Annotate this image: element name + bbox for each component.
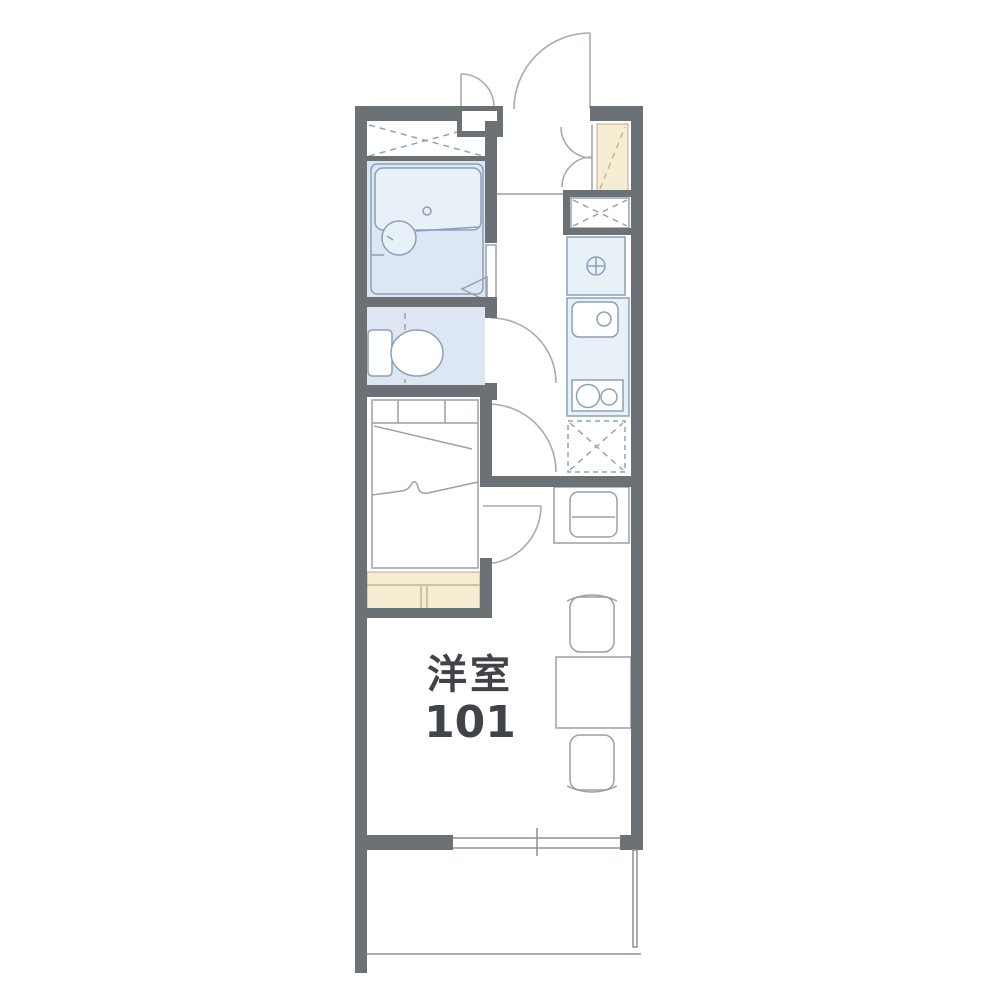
shoe-cabinet [597, 124, 628, 193]
bed [372, 400, 478, 568]
toilet-tank [368, 330, 392, 376]
storage-frame-top [563, 190, 631, 197]
bottom-wall-left [355, 835, 453, 850]
room-corner-wall [367, 608, 490, 618]
entrance-door-arc [514, 33, 590, 109]
top-wall-left [355, 106, 461, 121]
toilet-bottom-wall [355, 385, 492, 397]
washroom-door-arc [488, 404, 556, 472]
toilet-right-wall [485, 297, 497, 318]
bathtub [375, 168, 481, 230]
meter-box-door-arc [461, 74, 494, 107]
wash-basin [382, 221, 416, 255]
washer-tap-icon [587, 257, 605, 275]
storage-frame-bottom [563, 228, 631, 235]
storage-counter [367, 572, 480, 611]
bath-right-wall [485, 121, 497, 243]
bath-bottom-wall [355, 297, 497, 307]
room-number-label: 101 [424, 697, 516, 748]
shoe-cabinet-door-arc [561, 127, 592, 158]
toilet-bowl [391, 330, 443, 376]
bed-outline [372, 400, 478, 568]
desk-area [554, 487, 629, 543]
shoe-cabinet-door-arc [562, 157, 592, 187]
hall-room-wall [480, 476, 637, 487]
balcony-right-rail [633, 850, 637, 947]
storage-box-cross [573, 200, 627, 226]
dining-set [556, 595, 631, 792]
dining-table [556, 657, 631, 728]
storage-box [571, 198, 629, 228]
bottom-wall-right [620, 835, 643, 850]
gas-stove [572, 380, 623, 411]
room-door-arc [483, 506, 541, 564]
chair-top [570, 597, 614, 652]
floorplan-page: 洋室 101 [0, 0, 1001, 1000]
storage-box-cross [573, 200, 627, 226]
room-name-label: 洋室 [427, 652, 513, 698]
closet-bottom-wall [367, 156, 485, 161]
bed-alcove-wall [480, 397, 492, 487]
floorplan: 洋室 101 [0, 0, 1001, 1000]
chair-bottom [570, 735, 614, 790]
sink-faucet [597, 312, 611, 326]
toilet-door-arc [491, 318, 556, 383]
